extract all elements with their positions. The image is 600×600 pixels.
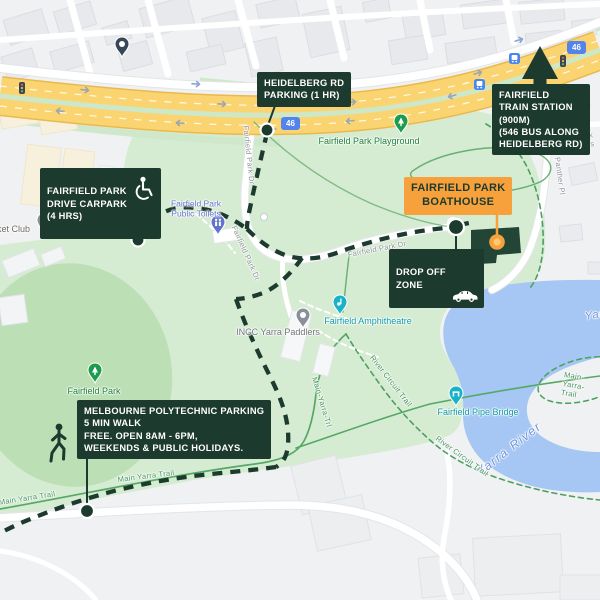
dropoff-node — [448, 219, 464, 235]
heidelberg-parking-callout: HEIDELBERG RD PARKING (1 HR) — [257, 72, 351, 107]
drop-off-zone-callout: DROP OFF ZONE — [389, 249, 484, 308]
route-46-badge: 46 — [281, 117, 300, 130]
train-station-callout: FAIRFIELD TRAIN STATION (900M) (546 BUS … — [492, 84, 590, 155]
drop-off-zone-text: DROP OFF ZONE — [396, 267, 446, 289]
route-46-badge: 46 — [567, 41, 586, 54]
map-canvas: Fairfield Park Playground Cricket Club F… — [0, 0, 600, 600]
drive-carpark-callout: FAIRFIELD PARK DRIVE CARPARK (4 HRS) — [40, 168, 161, 239]
polytechnic-node — [80, 504, 94, 518]
car-icon — [451, 288, 479, 303]
boathouse-marker[interactable] — [489, 234, 505, 250]
boathouse-callout: FAIRFIELD PARK BOATHOUSE — [404, 177, 512, 215]
heidelberg-parking-node — [261, 124, 274, 137]
wheelchair-icon — [133, 176, 155, 202]
polytechnic-parking-callout: MELBOURNE POLYTECHNIC PARKING 5 MIN WALK… — [77, 400, 271, 459]
drive-carpark-text: FAIRFIELD PARK DRIVE CARPARK (4 HRS) — [47, 186, 127, 221]
